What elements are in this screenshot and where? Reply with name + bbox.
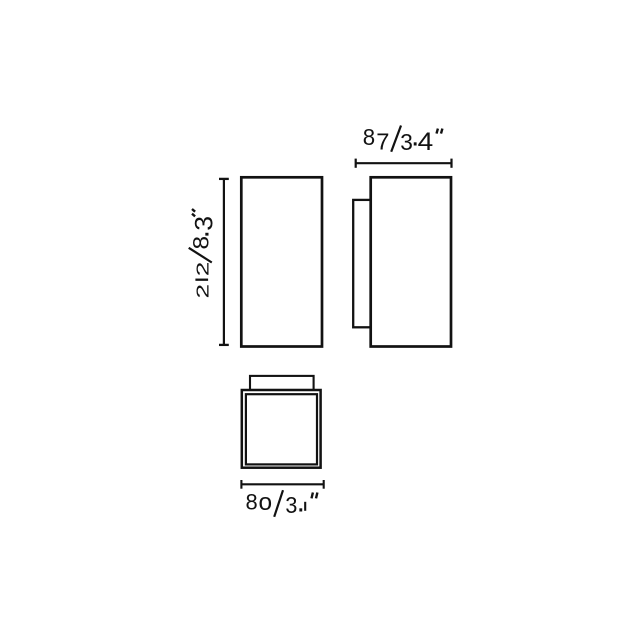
svg-text:o: o — [259, 489, 273, 516]
svg-text:2: 2 — [192, 262, 212, 277]
svg-text:7: 7 — [376, 129, 389, 155]
svg-text:3: 3 — [191, 216, 219, 231]
svg-text:.: . — [297, 485, 305, 518]
svg-text:2: 2 — [192, 284, 212, 299]
svg-text:8: 8 — [363, 124, 375, 150]
svg-text:4: 4 — [418, 128, 434, 156]
svg-text:3: 3 — [285, 492, 297, 518]
svg-text:8: 8 — [246, 490, 258, 515]
